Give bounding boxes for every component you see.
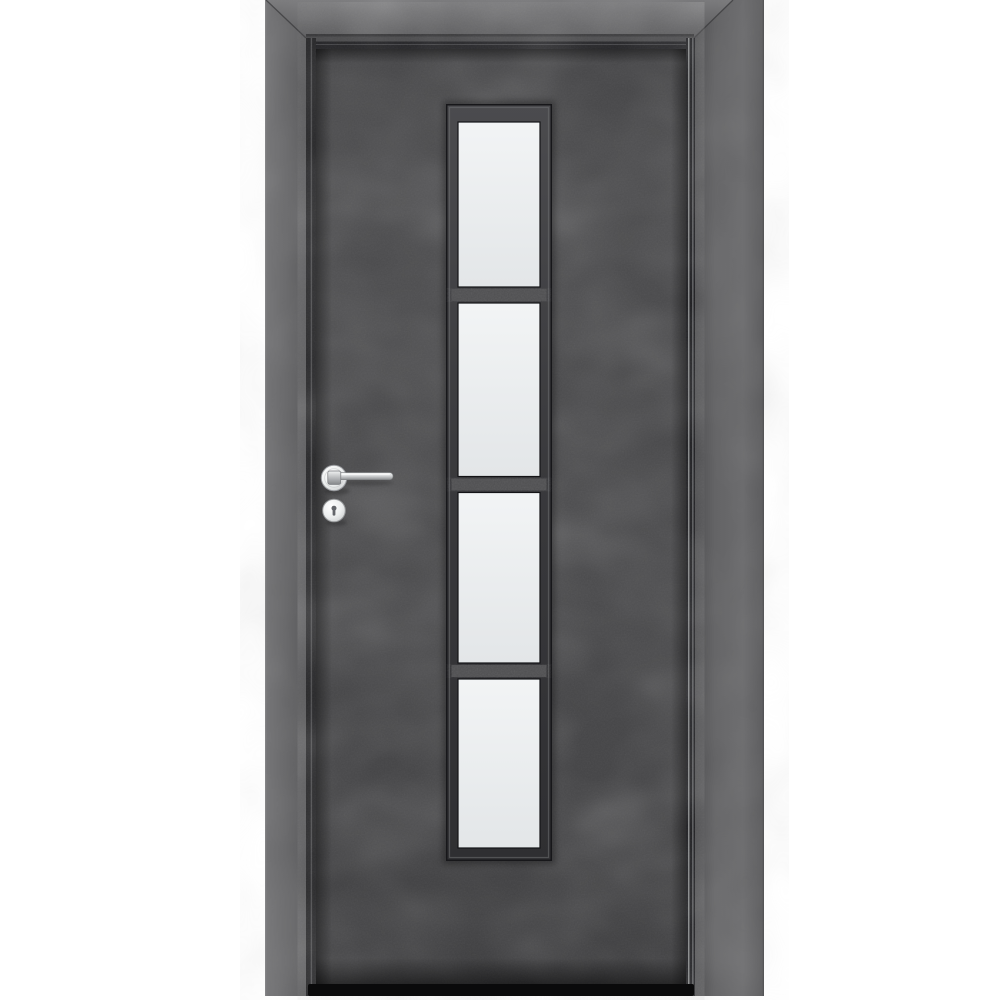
- handle-neck: [328, 471, 341, 484]
- divider-texture-1: [452, 289, 547, 301]
- gap-right-highlight-2: [692, 38, 693, 996]
- frame-gap-right: [686, 38, 695, 996]
- glass-pane-3: [458, 493, 540, 664]
- glass-pane-4: [458, 679, 540, 848]
- divider-texture-3: [452, 665, 547, 677]
- casing-right-outer-edge: [763, 0, 764, 996]
- gap-left-highlight: [311, 38, 312, 996]
- door-product-photo: [0, 0, 1000, 1000]
- threshold-shadow: [308, 984, 694, 996]
- glass-pane-2: [458, 303, 540, 477]
- leaf-shadow-bottom: [316, 958, 686, 986]
- lever-shadow: [339, 480, 393, 485]
- gap-right-highlight-1: [688, 38, 690, 996]
- glass-pane-1: [458, 122, 540, 287]
- gap-top-highlight: [306, 44, 694, 45]
- divider-texture-2: [452, 479, 547, 491]
- leaf-shadow-right: [671, 49, 686, 986]
- rebate-top-step: [306, 37, 694, 42]
- frame-gap-top: [306, 42, 694, 50]
- glazing-strip: [443, 101, 555, 864]
- casing-left-outer-edge: [265, 0, 266, 996]
- lever-top-highlight: [340, 474, 390, 476]
- product-photo-stage: [0, 0, 1000, 1000]
- rebate-top-edge-line: [306, 34, 694, 37]
- leaf-shadow-top: [316, 49, 686, 63]
